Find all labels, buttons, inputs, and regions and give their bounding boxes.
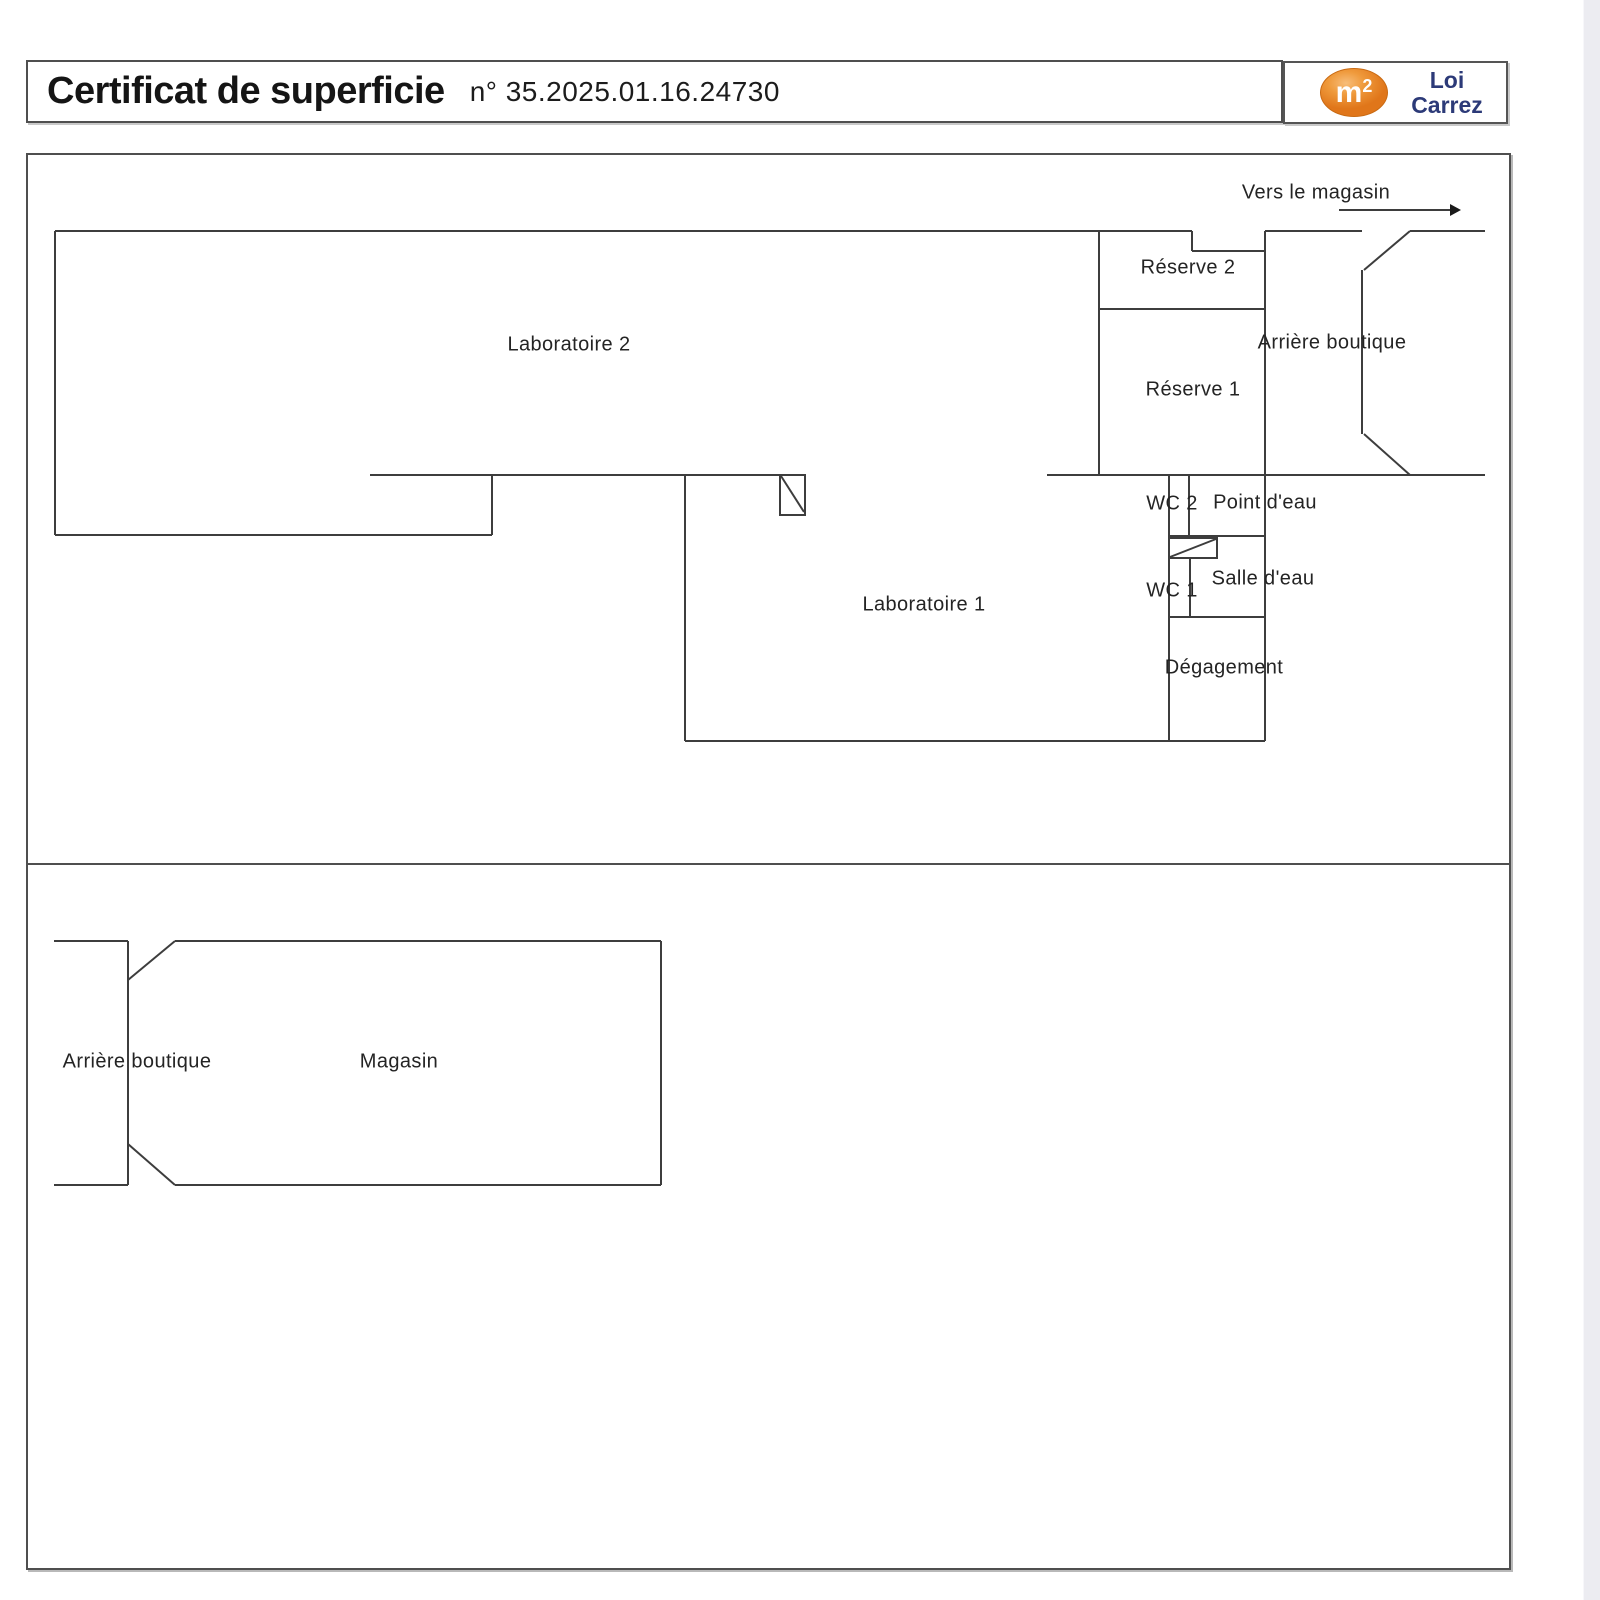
carrez-line: Carrez <box>1388 93 1506 118</box>
room-label-wc-1: WC 1 <box>1146 580 1198 603</box>
room-label-degagement: Dégagement <box>1165 657 1284 680</box>
floor-plan-upper: Vers le magasin Laboratoire 2 Réserve 2 … <box>26 153 1511 865</box>
direction-label-vers-le-magasin: Vers le magasin <box>1242 182 1390 205</box>
certificate-number: n° 35.2025.01.16.24730 <box>470 76 780 108</box>
room-label-salle-d-eau: Salle d'eau <box>1212 568 1315 591</box>
page-edge-strip <box>1583 0 1600 1600</box>
room-label-magasin: Magasin <box>360 1051 438 1074</box>
certificate-page: Certificat de superficie n° 35.2025.01.1… <box>0 0 1600 1600</box>
arrow-right-icon <box>1450 204 1461 216</box>
floor-plan-lower: Arrière boutique Magasin <box>26 863 1511 1570</box>
room-label-arriere-boutique-upper: Arrière boutique <box>1258 332 1407 355</box>
page-title: Certificat de superficie <box>47 70 445 113</box>
room-label-reserve-2: Réserve 2 <box>1141 257 1236 280</box>
loi-carrez-label: Loi Carrez <box>1388 68 1506 118</box>
room-label-reserve-1: Réserve 1 <box>1146 379 1241 402</box>
room-label-point-d-eau: Point d'eau <box>1213 492 1317 515</box>
loi-carrez-logo: m 2 Loi Carrez <box>1283 61 1508 124</box>
floor-plan-lower-walls <box>28 865 1509 1568</box>
room-label-arriere-boutique-lower: Arrière boutique <box>63 1051 212 1074</box>
room-label-laboratoire-2: Laboratoire 2 <box>507 334 630 357</box>
m2-exponent: 2 <box>1362 77 1372 95</box>
room-label-laboratoire-1: Laboratoire 1 <box>862 594 985 617</box>
room-label-wc-2: WC 2 <box>1146 493 1198 516</box>
m2-badge-icon: m 2 <box>1320 68 1388 117</box>
loi-line: Loi <box>1388 68 1506 93</box>
header-bar: Certificat de superficie n° 35.2025.01.1… <box>26 60 1283 123</box>
m2-symbol: m <box>1336 78 1363 108</box>
